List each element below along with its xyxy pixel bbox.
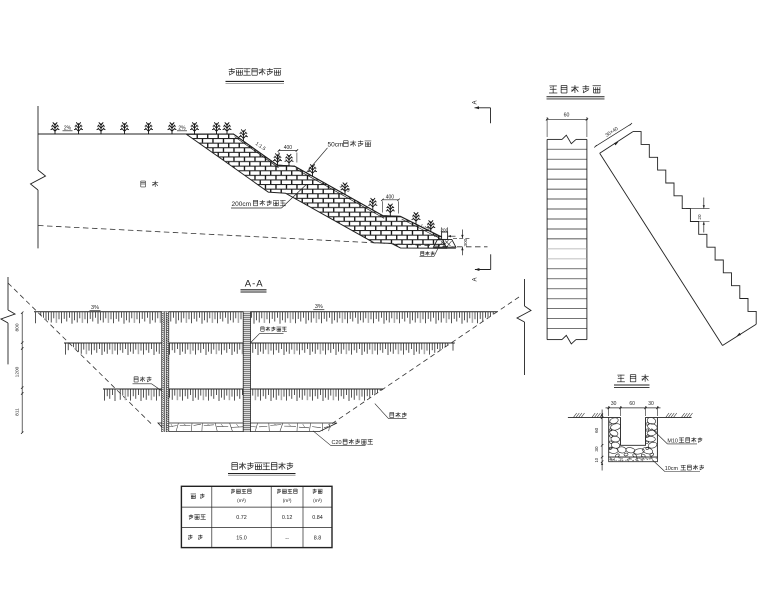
svg-text:0.84: 0.84 <box>312 515 323 521</box>
svg-text:1200: 1200 <box>15 366 21 377</box>
svg-text:811: 811 <box>15 408 21 416</box>
svg-text:0.72: 0.72 <box>236 515 247 521</box>
svg-text:300: 300 <box>463 238 468 246</box>
svg-text:0.12: 0.12 <box>282 515 293 521</box>
svg-text:A: A <box>473 277 479 281</box>
svg-text:C20: C20 <box>332 440 342 446</box>
svg-text:8.8: 8.8 <box>314 536 322 542</box>
svg-text:60: 60 <box>629 401 635 407</box>
svg-text:(m³): (m³) <box>283 498 292 504</box>
svg-text:A: A <box>472 100 478 104</box>
svg-text:30: 30 <box>648 401 654 407</box>
svg-text:30: 30 <box>611 401 617 407</box>
svg-text:20: 20 <box>697 214 702 220</box>
svg-text:50cm: 50cm <box>328 141 344 148</box>
svg-text:30: 30 <box>594 446 599 452</box>
svg-text:10: 10 <box>594 457 599 462</box>
svg-text:--: -- <box>285 536 289 542</box>
svg-text:3%: 3% <box>91 305 99 311</box>
svg-text:(m³): (m³) <box>237 498 246 504</box>
svg-text:A-A: A-A <box>245 278 264 289</box>
svg-text:800: 800 <box>15 323 21 331</box>
svg-text:60: 60 <box>594 427 599 433</box>
svg-text:15.0: 15.0 <box>236 536 247 542</box>
svg-text:2%: 2% <box>178 125 186 131</box>
svg-text:3%: 3% <box>315 304 323 310</box>
svg-text:60: 60 <box>564 113 570 119</box>
svg-text:200cm: 200cm <box>232 201 252 208</box>
svg-text:400: 400 <box>284 145 293 151</box>
svg-text:2%: 2% <box>64 125 72 131</box>
svg-text:(m³): (m³) <box>313 498 322 504</box>
svg-text:10cm: 10cm <box>665 466 679 472</box>
svg-text:400: 400 <box>386 194 395 200</box>
svg-text:M10: M10 <box>667 438 678 444</box>
